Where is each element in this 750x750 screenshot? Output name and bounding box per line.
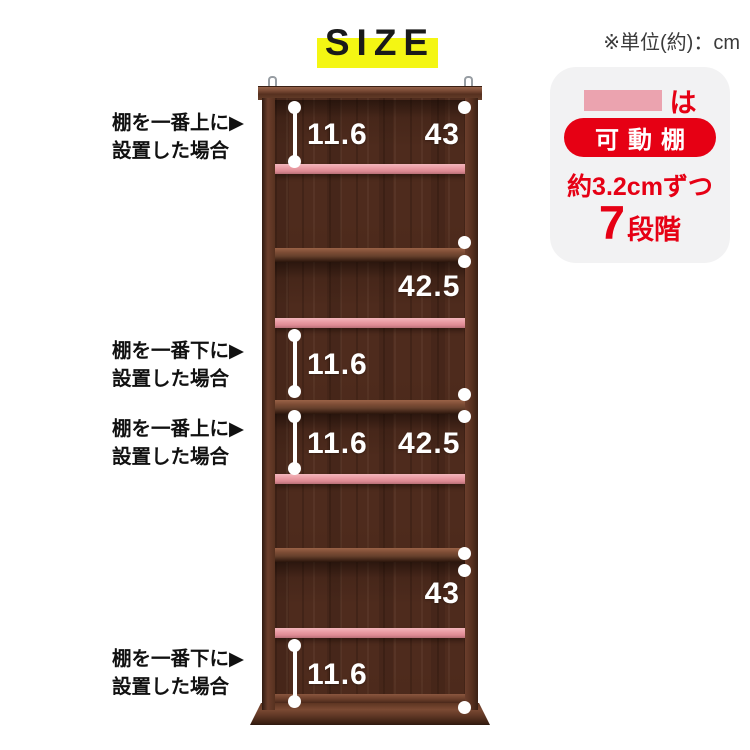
measure-dot [288, 329, 301, 342]
annotation-line: 棚を一番上に▶ [112, 110, 272, 138]
legend-steps: 7 段階 [550, 197, 730, 249]
measure-value: 43 [398, 577, 460, 611]
section-dot [458, 388, 471, 401]
movable-shelf [275, 164, 465, 174]
cabinet-left-wall [262, 98, 275, 710]
measure-value: 42.5 [398, 270, 460, 304]
measure-value: 11.6 [307, 348, 368, 382]
page-title: SIZE [305, 22, 455, 64]
fixed-shelf [275, 248, 465, 262]
annotation-line: 設置した場合 [112, 366, 272, 394]
section-dot [458, 547, 471, 560]
movable-shelf-badge: 可動棚 [564, 118, 716, 157]
steps-unit: 段階 [627, 208, 681, 247]
cabinet-base [250, 703, 490, 725]
measure-dot [288, 639, 301, 652]
measure-line [293, 645, 297, 701]
annotation-shelf-top-1: 棚を一番上に▶ 設置した場合 [112, 110, 272, 165]
measure-value: 11.6 [307, 118, 368, 152]
annotation-line: 設置した場合 [112, 674, 272, 702]
movable-shelf [275, 474, 465, 484]
annotation-line: 棚を一番下に▶ [112, 338, 272, 366]
section-dot [458, 236, 471, 249]
fixed-shelf [275, 400, 465, 414]
movable-shelf-legend: は 可動棚 約3.2cmずつ 7 段階 [550, 67, 730, 263]
measure-dot [288, 695, 301, 708]
measure-value: 11.6 [307, 658, 368, 692]
annotation-line: 設置した場合 [112, 138, 272, 166]
measure-dot [288, 385, 301, 398]
cabinet-right-wall [465, 98, 478, 710]
measure-dot [288, 410, 301, 423]
measure-dot [288, 462, 301, 475]
annotation-shelf-top-2: 棚を一番上に▶ 設置した場合 [112, 416, 272, 471]
steps-number: 7 [599, 197, 625, 249]
size-infographic: SIZE ※単位(約)：cm は 可動棚 約3.2cmずつ 7 段階 棚を一番上… [0, 0, 750, 750]
annotation-line: 設置した場合 [112, 444, 272, 472]
measure-line [293, 107, 297, 161]
cabinet-floor-board [275, 694, 465, 703]
movable-shelf [275, 318, 465, 328]
section-dot [458, 564, 471, 577]
measure-value: 11.6 [307, 427, 368, 461]
pink-swatch-icon [584, 90, 662, 111]
section-dot [458, 410, 471, 423]
annotation-shelf-bottom-2: 棚を一番下に▶ 設置した場合 [112, 646, 272, 701]
fixed-shelf [275, 548, 465, 562]
measure-value: 43 [398, 118, 460, 152]
section-dot [458, 101, 471, 114]
measure-dot [288, 101, 301, 114]
section-dot [458, 701, 471, 714]
section-dot [458, 255, 471, 268]
movable-shelf [275, 628, 465, 638]
legend-swatch-row: は [550, 81, 730, 120]
annotation-line: 棚を一番下に▶ [112, 646, 272, 674]
measure-dot [288, 155, 301, 168]
annotation-line: 棚を一番上に▶ [112, 416, 272, 444]
annotation-shelf-bottom-1: 棚を一番下に▶ 設置した場合 [112, 338, 272, 393]
measure-value: 42.5 [398, 427, 460, 461]
unit-note: ※単位(約)：cm [540, 26, 740, 55]
measure-line [293, 335, 297, 391]
measure-line [293, 416, 297, 468]
legend-suffix: は [670, 81, 697, 120]
